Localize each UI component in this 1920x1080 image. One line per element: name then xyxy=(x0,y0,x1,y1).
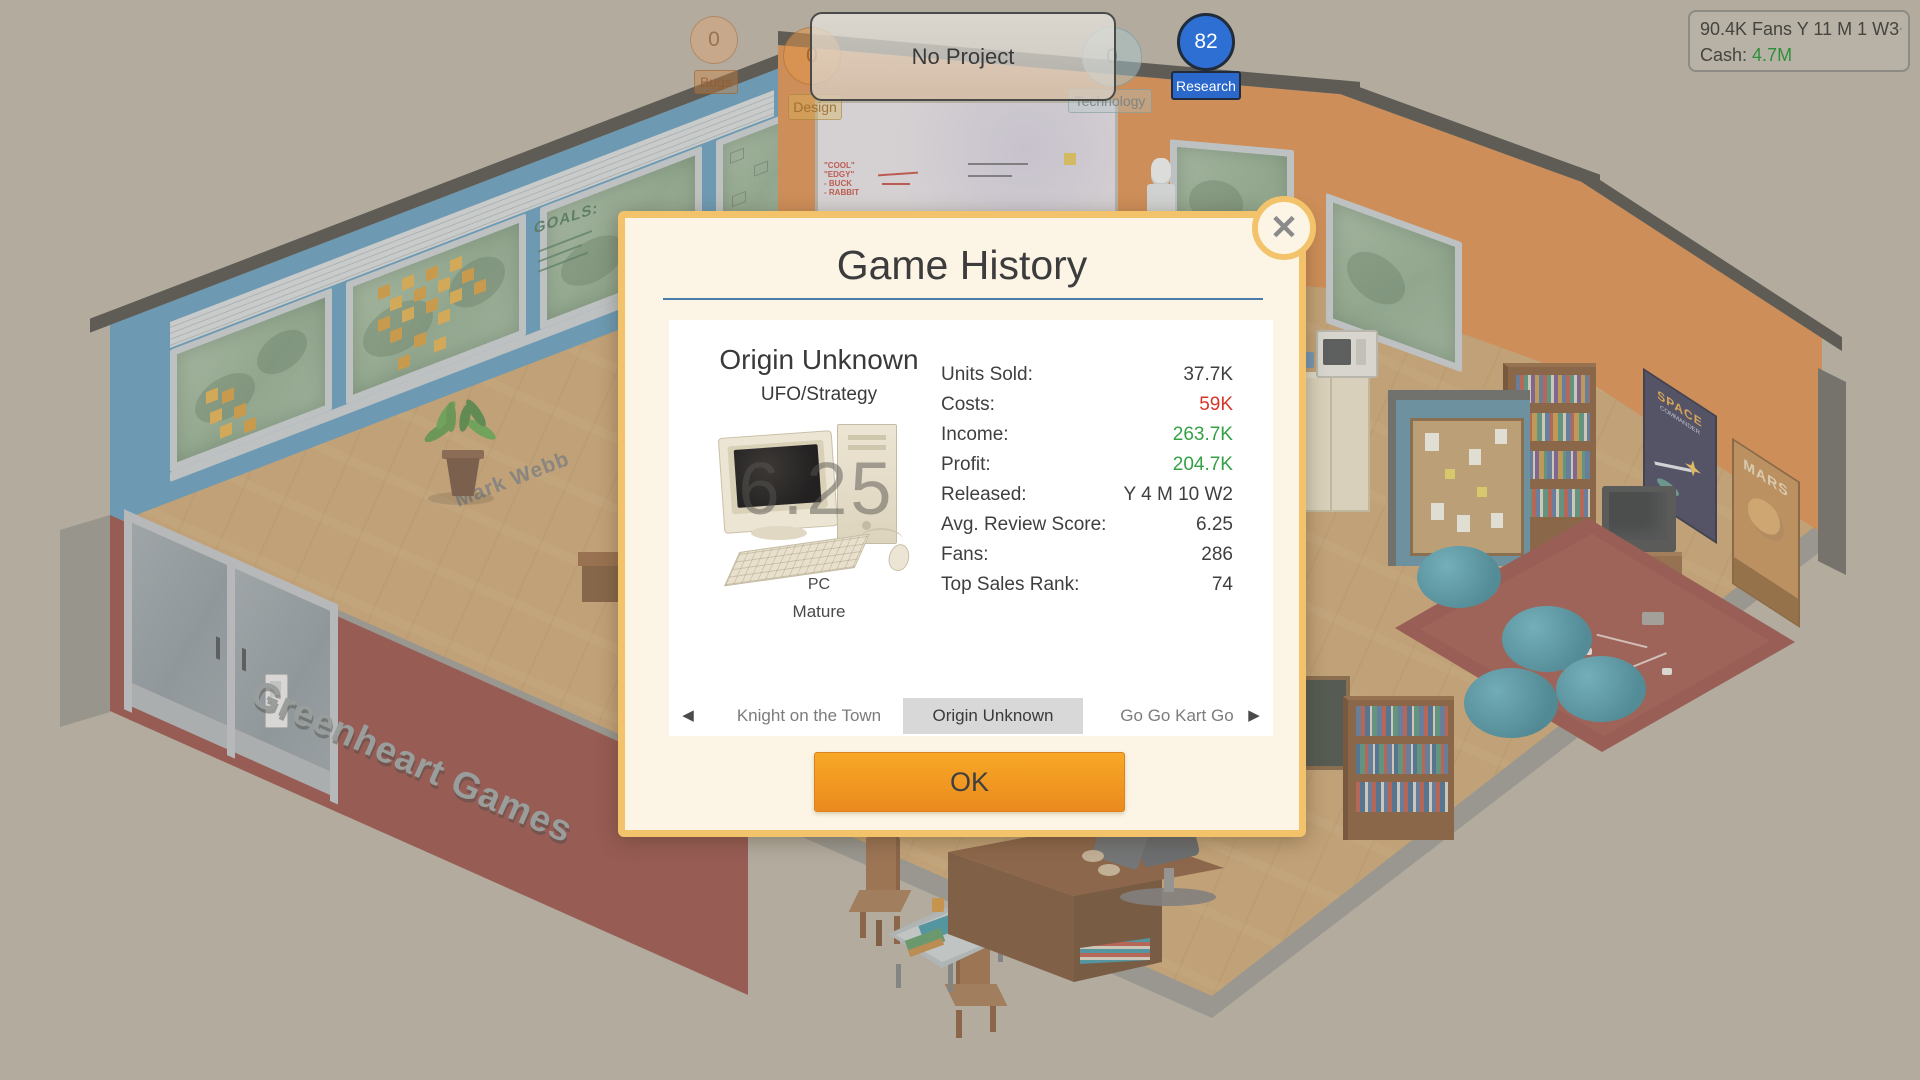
fans-sup-dot: · xyxy=(1899,23,1903,35)
game-history-nav: ◀ Knight on the Town Origin Unknown Go G… xyxy=(669,698,1273,734)
fans-cash-info-box: 90.4K Fans Y 11 M 1 W3· Cash: 4.7M xyxy=(1688,10,1910,72)
stat-label: Top Sales Rank: xyxy=(941,570,1079,600)
stat-label: Units Sold: xyxy=(941,360,1033,390)
stat-row: Fans: 286 xyxy=(941,540,1233,570)
stat-label: Profit: xyxy=(941,450,991,480)
review-score-overlay: 6.25 xyxy=(669,446,964,531)
bugs-count: 0 xyxy=(708,28,720,52)
stat-row: Units Sold: 37.7K xyxy=(941,360,1233,390)
next-game-button[interactable]: ▶ xyxy=(1241,698,1267,734)
title-divider xyxy=(663,298,1263,300)
tower-slot xyxy=(848,435,886,440)
prev-game-button[interactable]: ◀ xyxy=(675,698,701,734)
design-label-text: Design xyxy=(793,99,837,115)
cash-value: 4.7M xyxy=(1752,45,1792,65)
stat-value: 263.7K xyxy=(1173,420,1233,450)
stat-value: 6.25 xyxy=(1196,510,1233,540)
stat-value: 59K xyxy=(1199,390,1233,420)
stat-value: 74 xyxy=(1212,570,1233,600)
game-history-dialog: Game History Origin Unknown UFO/Strategy xyxy=(618,211,1306,837)
stats-list: Units Sold: 37.7K Costs: 59K Income: 263… xyxy=(941,360,1233,600)
rating-label: Mature xyxy=(679,602,959,622)
bugs-bubble[interactable]: 0 xyxy=(690,16,738,64)
stat-row: Top Sales Rank: 74 xyxy=(941,570,1233,600)
cash-line: Cash: 4.7M xyxy=(1700,42,1908,68)
stat-row: Released: Y 4 M 10 W2 xyxy=(941,480,1233,510)
game-name: Origin Unknown xyxy=(679,344,959,376)
research-count: 82 xyxy=(1194,30,1217,54)
stat-row: Avg. Review Score: 6.25 xyxy=(941,510,1233,540)
stat-row: Profit: 204.7K xyxy=(941,450,1233,480)
stat-value: 286 xyxy=(1201,540,1233,570)
stat-value: 37.7K xyxy=(1183,360,1233,390)
game-details-panel: Origin Unknown UFO/Strategy 6.25 xyxy=(669,320,1273,736)
stat-label: Avg. Review Score: xyxy=(941,510,1106,540)
research-bubble[interactable]: 82 xyxy=(1177,13,1235,71)
project-banner-text: No Project xyxy=(912,44,1015,70)
stat-label: Released: xyxy=(941,480,1027,510)
stat-label: Fans: xyxy=(941,540,989,570)
platform-label: PC xyxy=(679,576,959,594)
research-label-text: Research xyxy=(1176,78,1236,94)
stat-value: Y 4 M 10 W2 xyxy=(1124,480,1233,510)
stat-value: 204.7K xyxy=(1173,450,1233,480)
stat-label: Costs: xyxy=(941,390,995,420)
fans-date-text: 90.4K Fans Y 11 M 1 W3 xyxy=(1700,19,1899,39)
project-banner: No Project xyxy=(810,12,1116,101)
nav-current-game[interactable]: Origin Unknown xyxy=(903,698,1083,734)
dialog-title: Game History xyxy=(625,242,1299,289)
ok-button[interactable]: OK xyxy=(814,752,1125,812)
bugs-label-text: Bugs xyxy=(700,74,732,90)
nav-next-game[interactable]: Go Go Kart Go xyxy=(1097,698,1257,734)
bugs-label: Bugs xyxy=(694,70,738,94)
fans-date-line: 90.4K Fans Y 11 M 1 W3· xyxy=(1700,16,1908,42)
close-icon: ✕ xyxy=(1270,208,1299,248)
nav-prev-game[interactable]: Knight on the Town xyxy=(725,698,893,734)
research-label: Research xyxy=(1171,71,1241,100)
game-genre: UFO/Strategy xyxy=(679,384,959,406)
stat-row: Costs: 59K xyxy=(941,390,1233,420)
stat-row: Income: 263.7K xyxy=(941,420,1233,450)
stat-label: Income: xyxy=(941,420,1009,450)
game-dev-tycoon-screen: GOALS: SPACE COMMANDER MARS xyxy=(0,0,1920,1080)
cash-label: Cash: xyxy=(1700,45,1747,65)
close-button[interactable]: ✕ xyxy=(1252,196,1316,260)
